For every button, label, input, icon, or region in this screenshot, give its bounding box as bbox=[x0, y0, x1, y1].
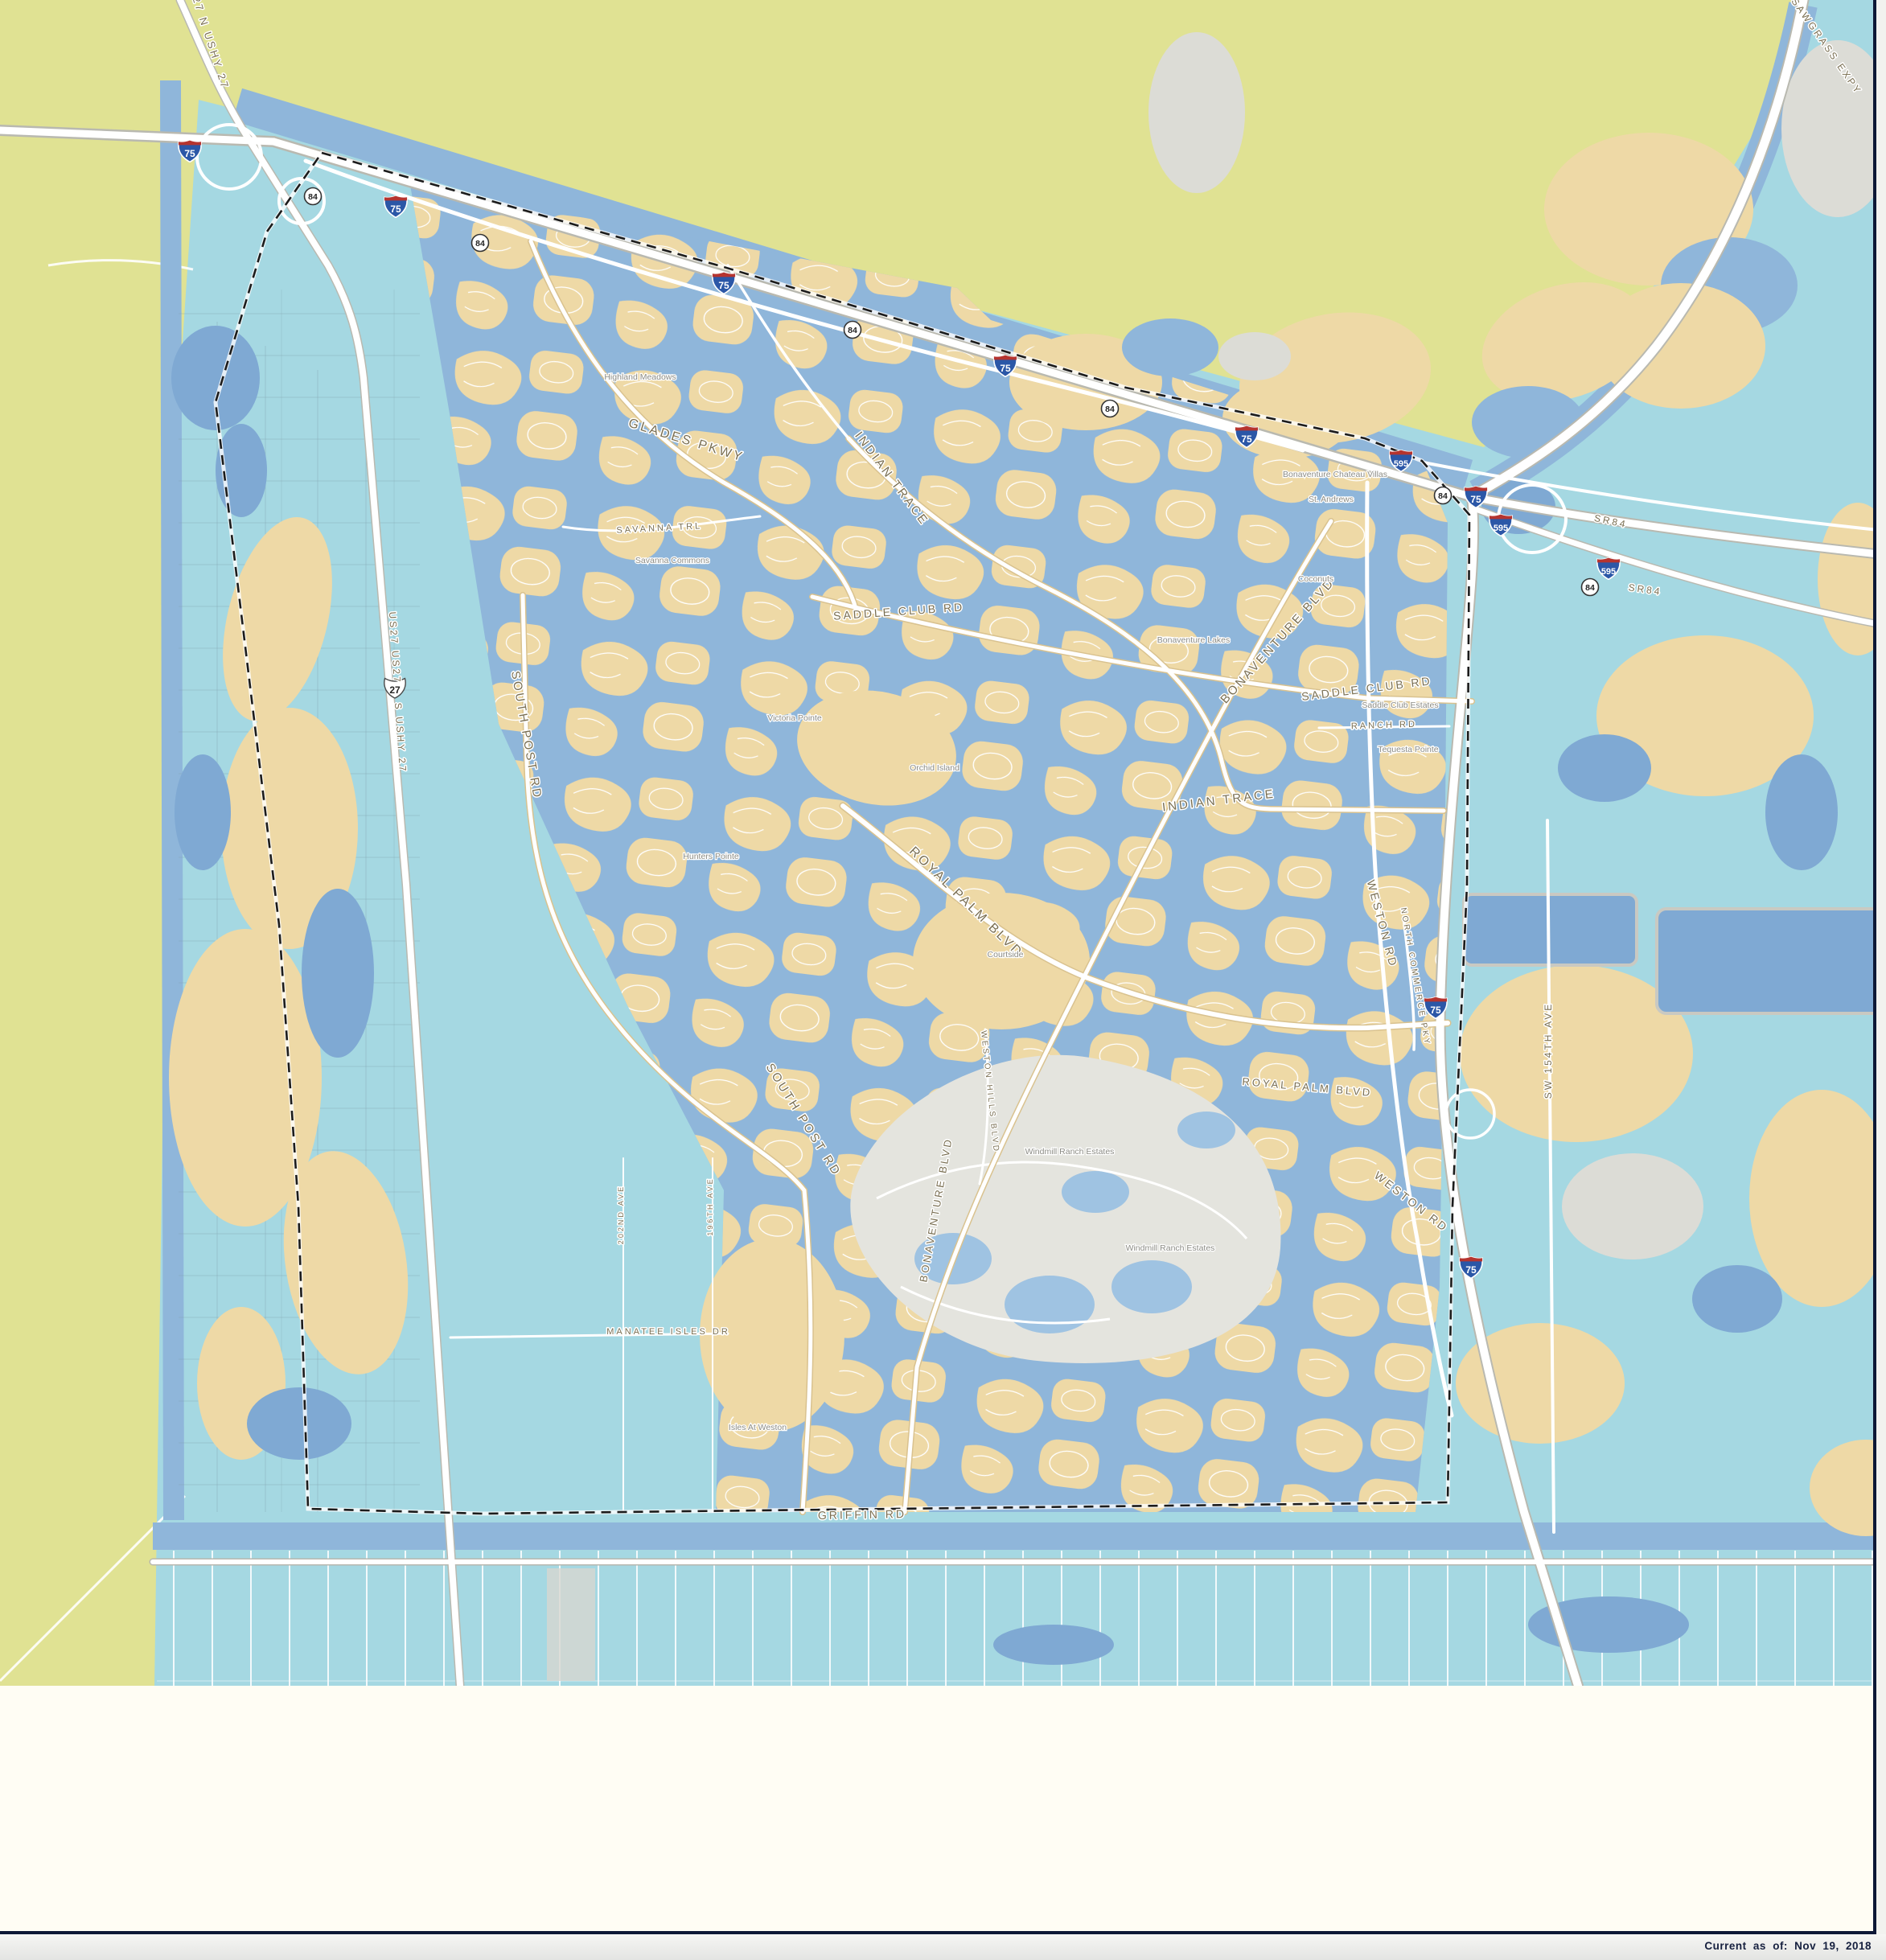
date-strip: Current as of: Nov 19, 2018 bbox=[0, 1934, 1886, 1960]
neighborhood-label: Bonaventure Lakes bbox=[1157, 635, 1230, 645]
neighborhood-label: Windmill Ranch Estates bbox=[1025, 1147, 1115, 1157]
neighborhood-label: Courtside bbox=[988, 950, 1024, 959]
neighborhood-label: Bonaventure Chateau Villas bbox=[1283, 470, 1387, 479]
svg-text:595: 595 bbox=[1601, 567, 1616, 577]
c84-shield: 84 bbox=[1582, 579, 1599, 596]
flood-hazard-map-page: 757575757575757559559559584848484848427 … bbox=[0, 0, 1886, 1960]
neighborhood-label: Savanna Commons bbox=[635, 556, 709, 565]
weston-flood-map: 757575757575757559559559584848484848427 … bbox=[0, 0, 1886, 1686]
neighborhood-label: St. Andrews bbox=[1309, 495, 1354, 504]
svg-text:84: 84 bbox=[475, 239, 485, 249]
svg-text:84: 84 bbox=[848, 326, 857, 335]
svg-text:84: 84 bbox=[1585, 583, 1595, 593]
road-label: 196TH AVE bbox=[706, 1177, 714, 1235]
svg-text:75: 75 bbox=[1430, 1005, 1441, 1016]
svg-text:84: 84 bbox=[308, 192, 318, 202]
svg-text:75: 75 bbox=[1470, 494, 1481, 505]
current-as-of: Current as of: Nov 19, 2018 bbox=[1704, 1940, 1872, 1952]
c84-shield: 84 bbox=[1102, 401, 1119, 417]
svg-text:75: 75 bbox=[1241, 434, 1252, 445]
svg-text:75: 75 bbox=[184, 148, 195, 159]
road-label: SW 154TH AVE bbox=[1543, 1002, 1554, 1099]
neighborhood-label: Coconuts bbox=[1298, 574, 1333, 584]
svg-text:75: 75 bbox=[718, 280, 729, 291]
svg-text:75: 75 bbox=[1465, 1264, 1477, 1276]
neighborhood-label: Orchid Island bbox=[910, 763, 959, 773]
neighborhood-label: Highland Meadows bbox=[604, 372, 676, 382]
svg-text:595: 595 bbox=[1494, 524, 1508, 533]
neighborhood-label: Isles At Weston bbox=[729, 1423, 787, 1432]
c84-shield: 84 bbox=[844, 322, 861, 339]
neighborhood-label: Tequesta Pointe bbox=[1378, 745, 1438, 754]
svg-text:595: 595 bbox=[1394, 459, 1408, 469]
c84-shield: 84 bbox=[1435, 487, 1452, 504]
west-agricultural-zone bbox=[169, 290, 423, 1512]
neighborhood-label: Victoria Pointe bbox=[767, 713, 822, 723]
map-canvas: 757575757575757559559559584848484848427 … bbox=[0, 0, 1886, 1686]
road-label: GRIFFIN RD bbox=[818, 1507, 906, 1522]
svg-text:84: 84 bbox=[1438, 491, 1448, 501]
road-label: MANATEE ISLES DR bbox=[606, 1327, 730, 1337]
neighborhood-label: Windmill Ranch Estates bbox=[1126, 1243, 1215, 1253]
neighborhood-label: Hunters Pointe bbox=[683, 852, 739, 861]
right-margin bbox=[1876, 0, 1886, 1934]
neighborhood-label: Saddle Club Estates bbox=[1362, 701, 1438, 710]
legend-panel: FLOOD HAZARD ZONES Zone AE1% chance of a… bbox=[0, 1686, 1886, 1934]
svg-text:75: 75 bbox=[390, 203, 401, 215]
svg-text:84: 84 bbox=[1105, 405, 1115, 414]
svg-text:27: 27 bbox=[389, 684, 401, 696]
c84-shield: 84 bbox=[472, 235, 489, 252]
svg-text:75: 75 bbox=[1000, 363, 1011, 374]
c84-shield: 84 bbox=[305, 188, 322, 205]
road-label: 202ND AVE bbox=[617, 1185, 625, 1244]
